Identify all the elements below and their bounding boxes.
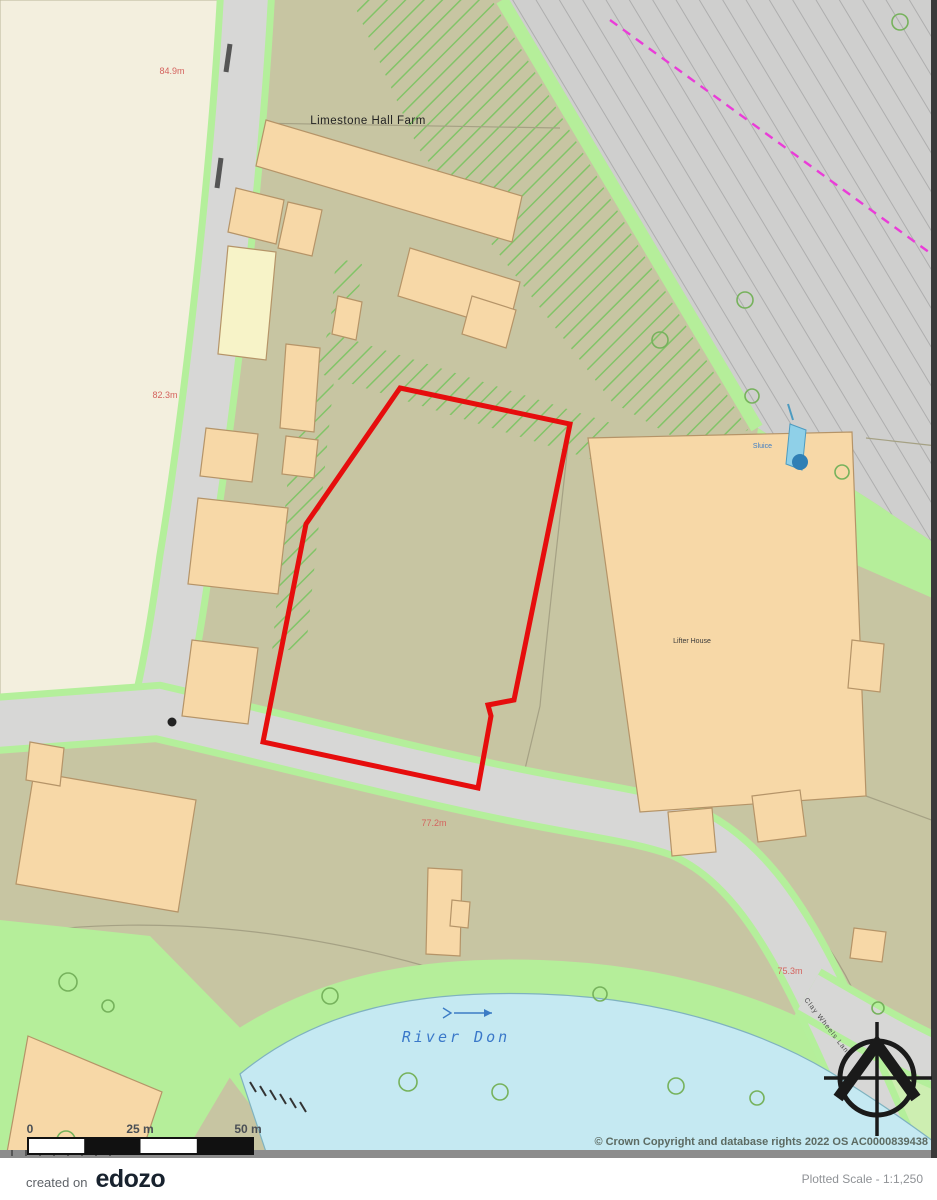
spot-height-label: 75.3m [777,966,802,976]
footer-brand: created on edozo [26,1165,165,1194]
river-name-label: River Don [402,1028,510,1046]
footer: created on edozo Plotted Scale - 1:1,250 [0,1158,937,1200]
building [450,900,470,928]
map-canvas: Limestone Hall Farm Lifter House 84.9m 8… [0,0,937,1158]
page: Limestone Hall Farm Lifter House 84.9m 8… [0,0,937,1200]
farm-name-label: Limestone Hall Farm [310,115,426,127]
building [850,928,886,962]
building-pale [218,246,276,360]
spot-height-label: 77.2m [421,818,446,828]
junction-dot [168,718,177,727]
building [752,790,806,842]
edozo-logo: edozo [95,1165,165,1194]
house-name-label: Lifter House [673,638,711,645]
building [200,428,258,482]
building [668,808,716,856]
building [182,640,258,724]
created-on-text: created on [26,1175,87,1190]
scale-label-end: 50 m [234,1122,261,1136]
scale-label-mid: 25 m [126,1122,153,1136]
building [848,640,884,692]
sluice-label: Sluice [753,443,772,450]
building [332,296,362,340]
spot-height-label: 84.9m [159,66,184,76]
building [280,344,320,432]
building [188,498,288,594]
map-right-border [931,0,937,1158]
map-svg: Limestone Hall Farm Lifter House 84.9m 8… [0,0,937,1158]
spot-height-label: 82.3m [152,390,177,400]
copyright-text: © Crown Copyright and database rights 20… [594,1136,928,1148]
building [26,742,64,786]
building [282,436,318,478]
plotted-scale-text: Plotted Scale - 1:1,250 [802,1172,923,1186]
scale-label-zero: 0 [27,1122,34,1136]
